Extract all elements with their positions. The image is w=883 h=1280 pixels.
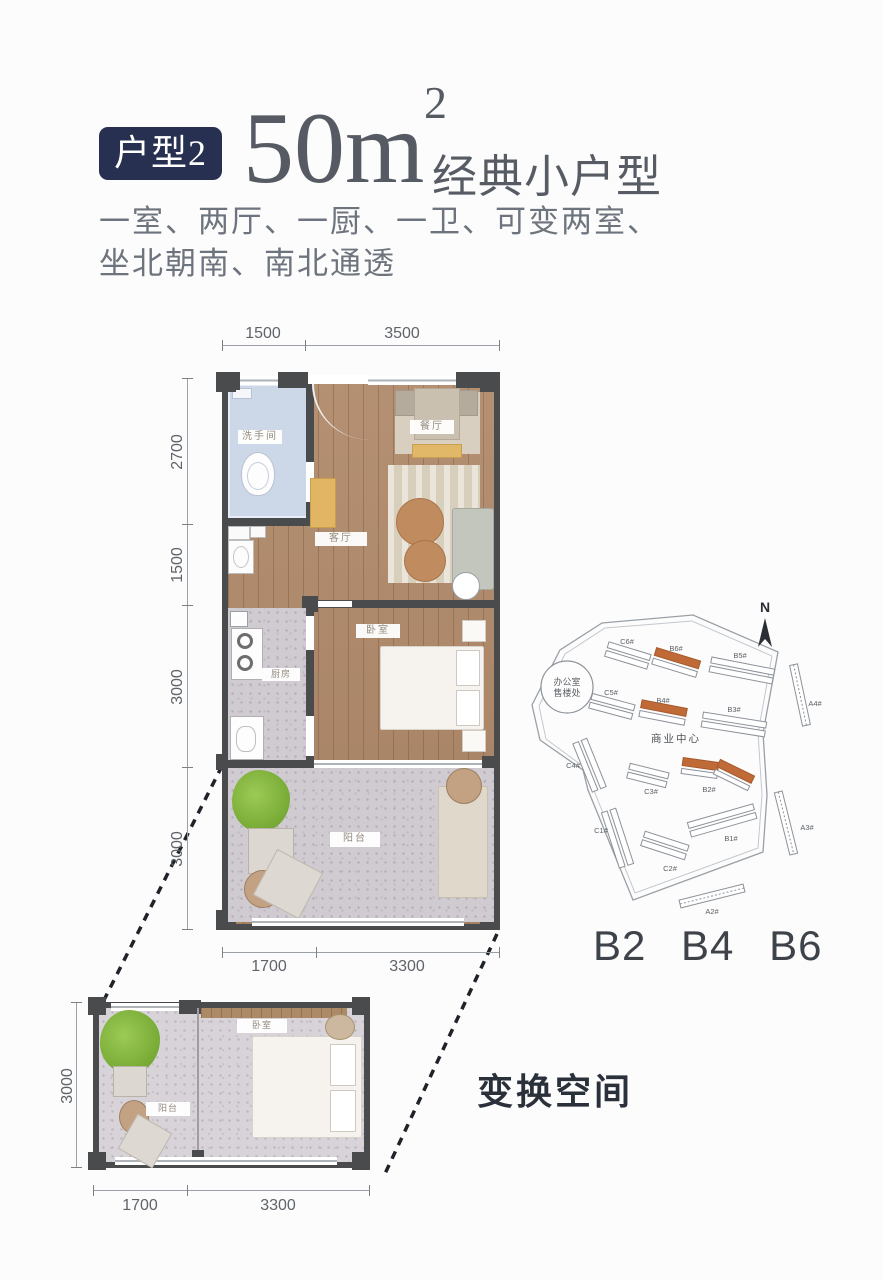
building-label-b1: B1#: [724, 834, 738, 843]
building-label-c3: C3#: [644, 787, 659, 796]
stool: [113, 1066, 147, 1097]
building-label-c4: C4#: [566, 761, 581, 770]
corner-block: [88, 1152, 106, 1170]
kitchen-hood: [230, 611, 248, 627]
sink-basin: [233, 546, 249, 568]
dim-tick: [182, 929, 193, 930]
building-label-c6: C6#: [620, 637, 635, 646]
burner: [237, 655, 253, 671]
building-c3: [627, 763, 669, 787]
site-center-label: 商业中心: [651, 732, 701, 745]
dim-tick: [499, 340, 500, 351]
corner-block: [216, 372, 236, 392]
building-label-c2: C2#: [663, 864, 678, 873]
dim-tick: [182, 524, 193, 525]
building-label-c5: C5#: [604, 688, 619, 697]
dim-tick: [182, 605, 193, 606]
dim-tick: [316, 947, 317, 958]
dim-label-top-3500: 3500: [372, 325, 432, 343]
corner-block: [88, 997, 106, 1015]
dim-tick: [93, 1185, 94, 1196]
room-label-living: 客厅: [315, 532, 367, 546]
corner-block: [352, 997, 370, 1015]
building-b2-west: [681, 758, 719, 779]
window: [111, 1003, 179, 1011]
room-label-balcony: 阳台: [330, 832, 380, 847]
dim-label-small-1700: 1700: [110, 1197, 170, 1215]
dim-tick: [182, 378, 193, 379]
building-c2: [641, 831, 689, 859]
entry-opening: [308, 375, 368, 384]
building-label-b3: B3#: [727, 705, 741, 714]
wall-segment: [197, 1008, 199, 1162]
door-opening: [306, 616, 314, 650]
room-label-bedroom: 卧室: [356, 624, 400, 638]
coffee-table: [404, 540, 446, 582]
building-label-a4: A4#: [808, 699, 822, 708]
wall-segment: [222, 518, 318, 526]
dining-bench: [412, 444, 462, 458]
pillow: [330, 1044, 356, 1086]
sink-basin: [236, 726, 256, 752]
building-b5: [709, 657, 775, 684]
compass-label: N: [760, 599, 770, 615]
dim-line-top: [222, 345, 500, 346]
building-label-a2: A2#: [705, 907, 719, 916]
dim-label-bottom-3300: 3300: [377, 958, 437, 976]
office-label-2: 售楼处: [553, 687, 580, 698]
office-label-1: 办公室: [553, 676, 580, 687]
dim-label-left-3000b: 3000: [169, 819, 187, 879]
building-label-c1: C1#: [594, 826, 609, 835]
window: [252, 918, 464, 926]
site-plan: N 办公室 售楼处 C6# B6# B5# C5# B4# B3# A4# 商业…: [525, 592, 860, 967]
door-opening: [306, 716, 314, 756]
dim-label-left-3000a: 3000: [169, 657, 187, 717]
building-label-b4: B4#: [656, 696, 670, 705]
window: [368, 376, 456, 385]
dim-tick: [71, 1002, 82, 1003]
flyer-canvas: 户型2 50m 2 经典小户型 一室、两厅、一厨、一卫、可变两室、 坐北朝南、南…: [0, 0, 883, 1280]
nightstand: [462, 730, 486, 752]
corner-block: [352, 1152, 370, 1170]
building-a4: [790, 664, 811, 726]
callout-label: 变换空间: [477, 1063, 633, 1115]
nightstand: [462, 620, 486, 642]
building-a3: [774, 791, 797, 855]
pillow: [456, 650, 480, 686]
dim-tick: [499, 947, 500, 958]
cabinet: [228, 526, 250, 540]
building-label-b5: B5#: [733, 651, 747, 660]
stool: [446, 768, 482, 804]
building-label-b2: B2#: [702, 785, 716, 794]
stool: [325, 1014, 355, 1040]
building-b2-east: [713, 759, 754, 790]
toilet-seat: [247, 462, 269, 490]
room-label-dining: 餐厅: [410, 420, 454, 434]
cabinet: [250, 526, 266, 538]
burner: [237, 633, 253, 649]
dining-chair: [395, 390, 415, 416]
window: [314, 760, 494, 768]
building-b1: [687, 804, 757, 837]
dim-tick: [187, 1185, 188, 1196]
room-label-bathroom: 洗手间: [238, 430, 282, 444]
site-caption: B2 B4 B6: [593, 922, 822, 970]
office-circle: [541, 661, 593, 713]
dim-label-small-3300: 3300: [248, 1197, 308, 1215]
dim-label-top-1500: 1500: [233, 325, 293, 343]
dim-tick: [222, 340, 223, 351]
pillow: [456, 690, 480, 726]
building-label-b6: B6#: [669, 644, 683, 653]
corner-block: [480, 372, 500, 392]
dim-tick: [369, 1185, 370, 1196]
coffee-table: [396, 498, 444, 546]
dim-tick: [305, 340, 306, 351]
bathroom-floor: [228, 384, 310, 518]
door-opening: [318, 601, 352, 607]
building-a2: [679, 884, 745, 908]
building-c1: [601, 808, 633, 868]
room-label-kitchen: 厨房: [262, 668, 300, 681]
dim-tick: [182, 767, 193, 768]
wall-segment: [278, 372, 308, 388]
dim-line-left: [187, 378, 188, 930]
compass-arrow-icon: [758, 618, 772, 647]
dim-tick: [222, 947, 223, 958]
window: [240, 376, 278, 385]
cabinet: [310, 478, 336, 528]
building-c5: [589, 694, 635, 720]
room-label-small-balcony: 阳台: [146, 1102, 190, 1116]
pillow: [330, 1090, 356, 1132]
dim-line-bottom: [222, 952, 500, 953]
side-table: [452, 572, 480, 600]
wardrobe: [201, 1008, 347, 1018]
dim-tick: [71, 1167, 82, 1168]
dim-label-small-3000: 3000: [59, 1056, 77, 1116]
room-label-small-bedroom: 卧室: [237, 1019, 287, 1033]
dim-label-left-1500: 1500: [169, 535, 187, 595]
dim-label-bottom-1700: 1700: [239, 958, 299, 976]
dining-chair: [458, 390, 478, 416]
building-label-a3: A3#: [800, 823, 814, 832]
dim-label-left-2700: 2700: [169, 422, 187, 482]
dim-line-small-bottom: [93, 1190, 370, 1191]
building-b3: [701, 712, 767, 737]
